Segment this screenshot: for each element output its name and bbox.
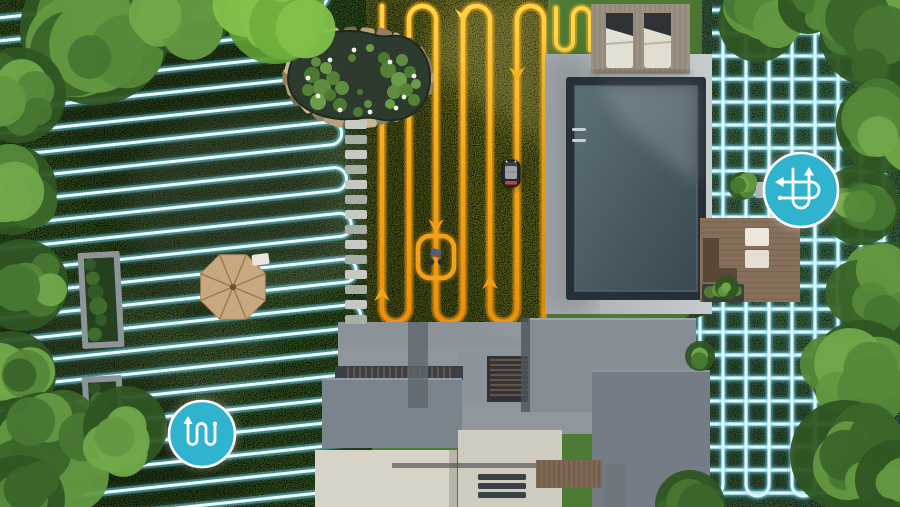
swimming-pool <box>566 77 706 300</box>
scene-svg: Serpentine mowing pattern badge Crosshat… <box>0 0 900 507</box>
garden-chair <box>251 253 269 266</box>
roof-wood-deck <box>536 460 602 488</box>
lounge-chair <box>606 13 633 68</box>
cushion <box>745 228 769 246</box>
wooden-platform <box>591 4 690 78</box>
garden-aerial-view: Serpentine mowing pattern badge Crosshat… <box>0 0 900 507</box>
skylights <box>478 474 526 498</box>
crosshatch-pattern-badge[interactable]: Crosshatch mowing pattern badge <box>761 150 841 230</box>
planter-bed <box>78 251 125 349</box>
serpentine-pattern-badge[interactable]: Serpentine mowing pattern badge <box>166 398 238 470</box>
roof-cream <box>315 450 457 507</box>
wooden-lounge-patio <box>700 218 800 302</box>
cushion <box>745 250 769 268</box>
lounge-chair <box>644 13 671 68</box>
